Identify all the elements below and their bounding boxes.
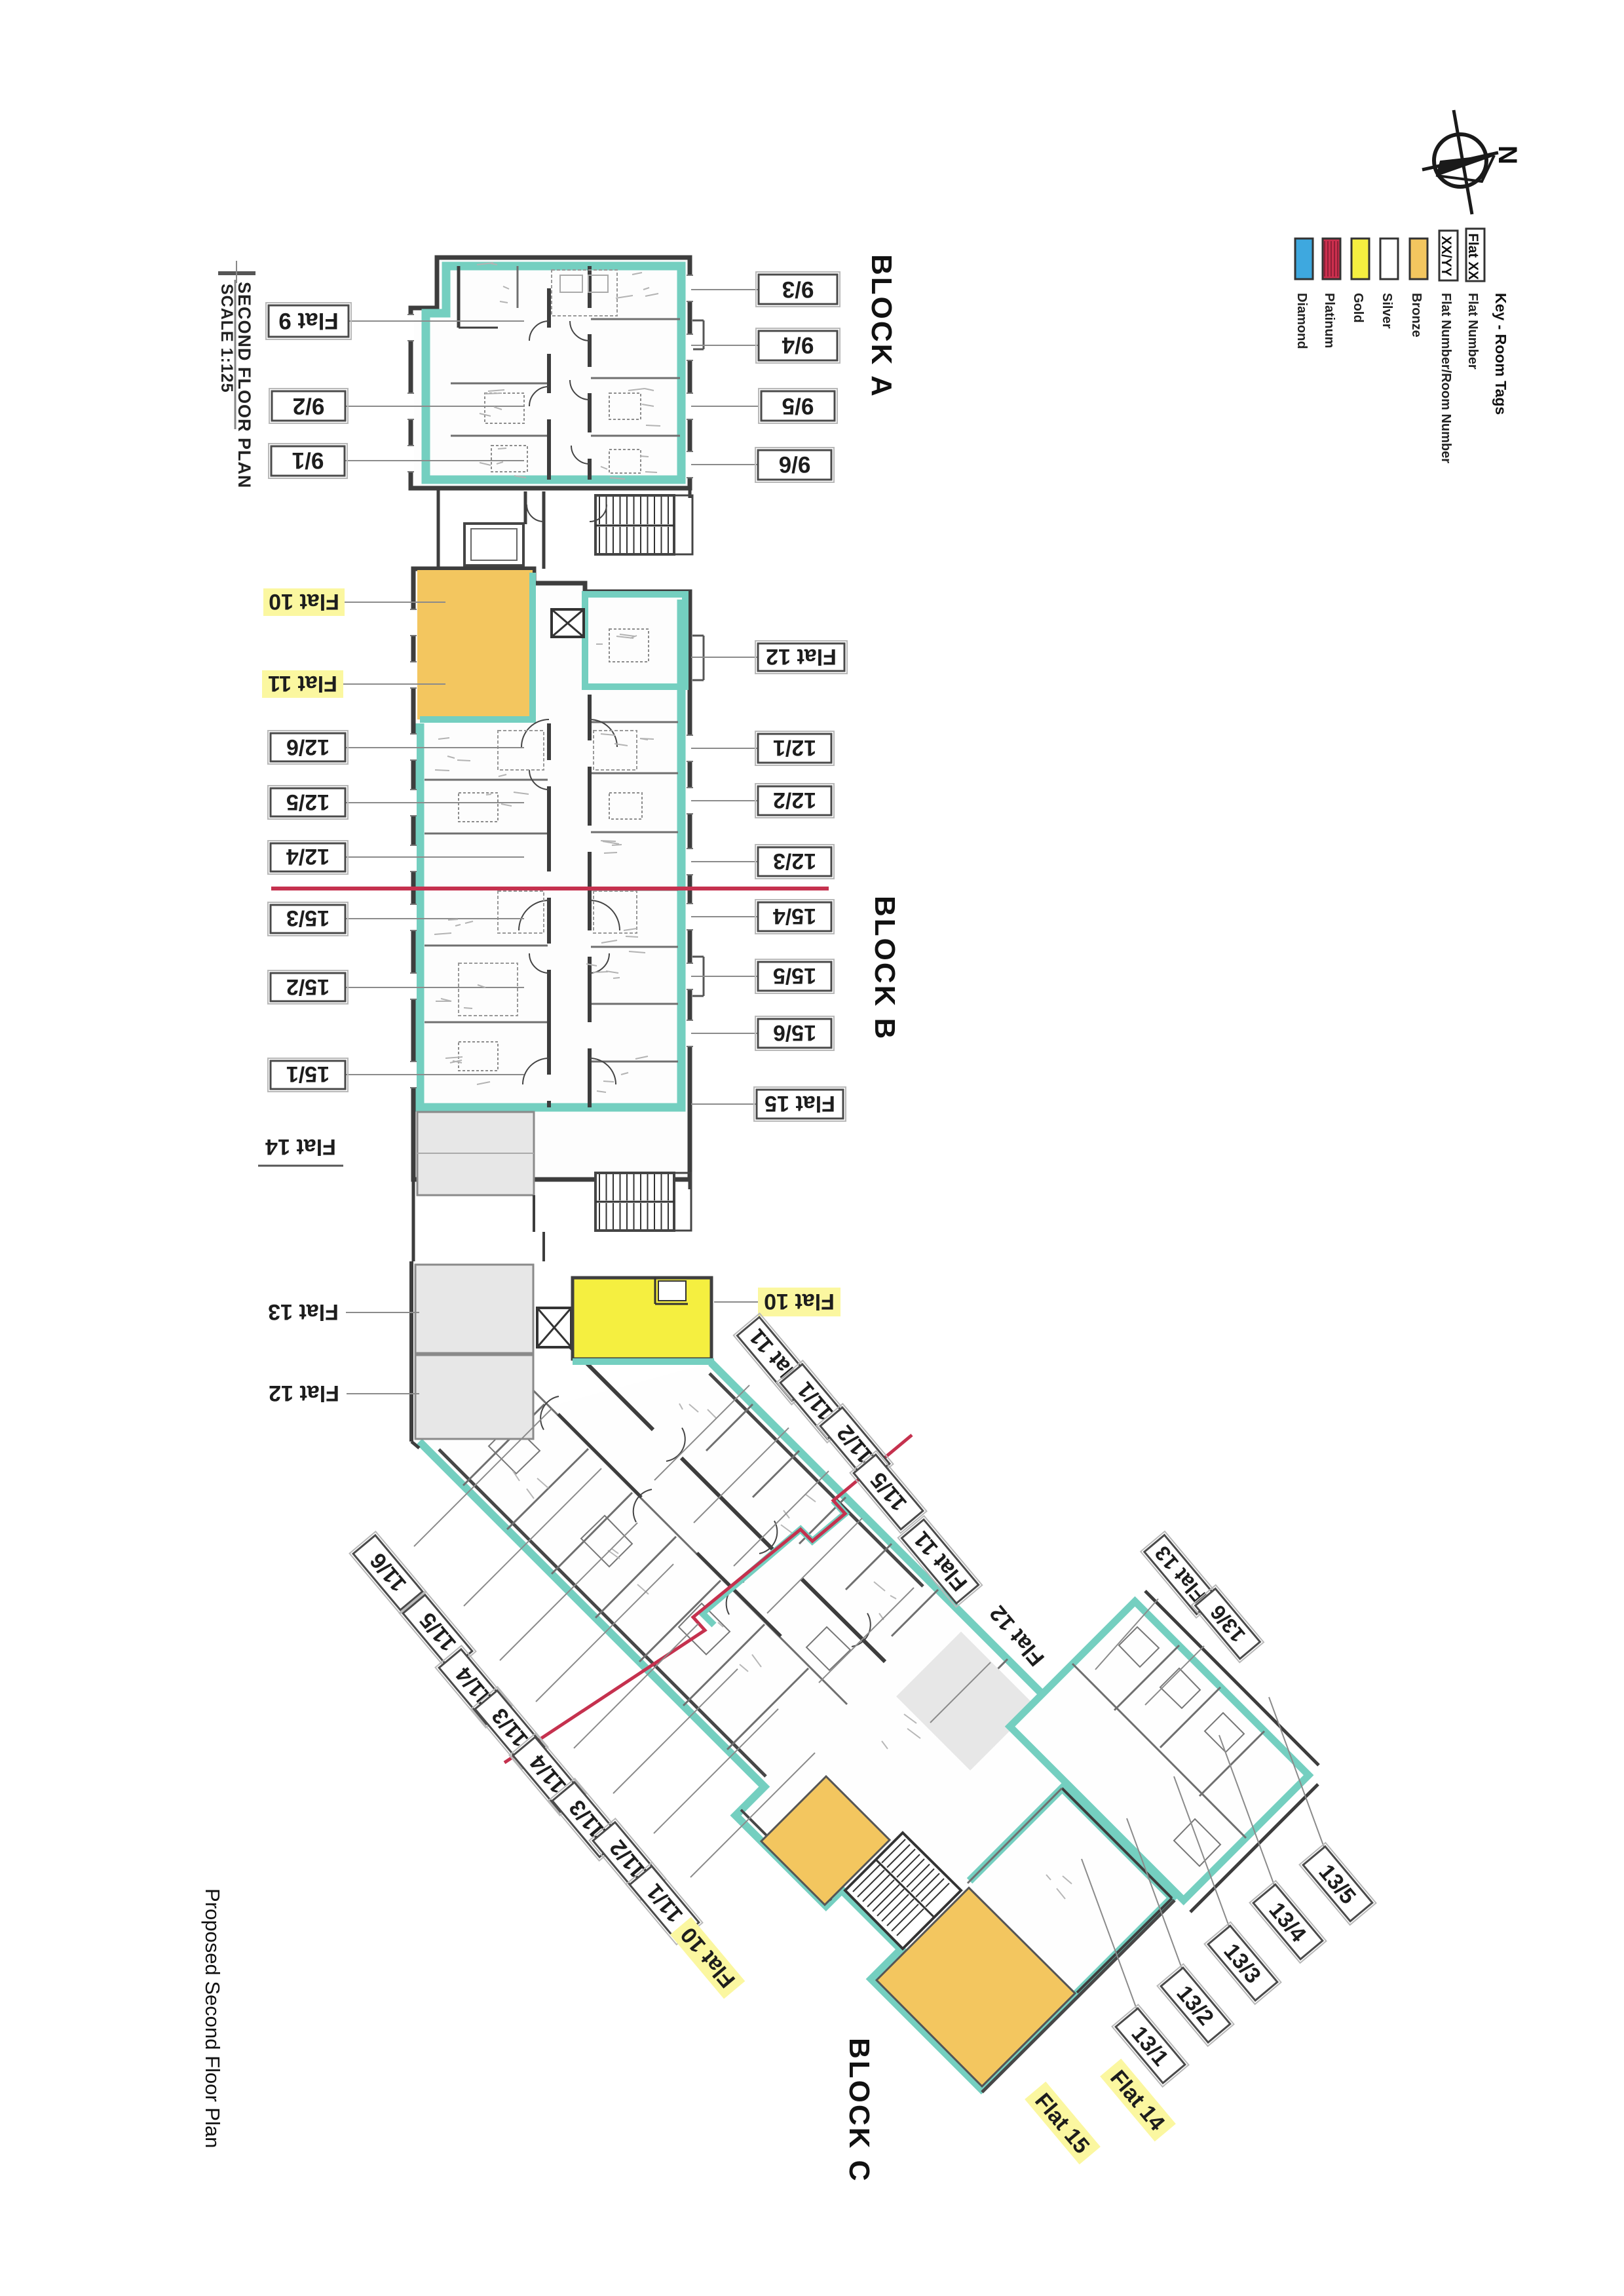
svg-text:Proposed Second Floor Plan: Proposed Second Floor Plan [201, 1888, 224, 2148]
svg-text:XX/YY: XX/YY [1439, 236, 1454, 277]
svg-text:12/4: 12/4 [286, 844, 330, 869]
svg-text:Silver: Silver [1380, 293, 1394, 329]
svg-text:Platinum: Platinum [1322, 293, 1336, 348]
svg-text:Bronze: Bronze [1409, 293, 1424, 337]
svg-text:Gold: Gold [1351, 293, 1365, 323]
svg-text:15/3: 15/3 [286, 906, 330, 930]
svg-text:Flat 10: Flat 10 [269, 589, 339, 614]
svg-text:9/4: 9/4 [782, 332, 814, 358]
svg-text:15/5: 15/5 [773, 963, 816, 988]
svg-text:9/3: 9/3 [782, 277, 814, 302]
svg-text:9/1: 9/1 [292, 448, 324, 473]
svg-text:15/4: 15/4 [773, 904, 816, 928]
svg-text:Flat 15: Flat 15 [765, 1091, 835, 1116]
svg-text:9/5: 9/5 [782, 393, 814, 419]
svg-text:BLOCK A: BLOCK A [865, 254, 897, 398]
svg-text:BLOCK C: BLOCK C [843, 2038, 875, 2183]
svg-text:15/2: 15/2 [286, 974, 330, 999]
svg-text:15/1: 15/1 [286, 1062, 330, 1086]
svg-text:SCALE 1:125: SCALE 1:125 [217, 284, 236, 393]
svg-text:Diamond: Diamond [1294, 293, 1309, 349]
svg-text:12/1: 12/1 [773, 735, 816, 760]
svg-text:Flat Number/Room Number: Flat Number/Room Number [1439, 293, 1453, 463]
svg-text:Flat XX: Flat XX [1465, 233, 1481, 280]
svg-text:SECOND FLOOR PLAN: SECOND FLOOR PLAN [235, 282, 254, 489]
svg-text:N: N [1493, 145, 1522, 164]
svg-text:9/2: 9/2 [293, 393, 325, 419]
svg-text:Flat 14: Flat 14 [265, 1134, 336, 1159]
svg-text:12/3: 12/3 [773, 849, 816, 873]
svg-text:12/5: 12/5 [286, 790, 330, 814]
svg-text:15/6: 15/6 [773, 1020, 816, 1045]
svg-text:Flat Number: Flat Number [1465, 293, 1480, 370]
svg-text:12/6: 12/6 [286, 735, 330, 759]
svg-text:Flat 13: Flat 13 [268, 1299, 339, 1324]
svg-text:Flat 11: Flat 11 [268, 671, 337, 696]
svg-text:12/2: 12/2 [773, 788, 816, 813]
svg-text:Key - Room Tags: Key - Room Tags [1492, 293, 1509, 415]
svg-text:Flat 10: Flat 10 [764, 1289, 835, 1314]
svg-text:Flat 9: Flat 9 [278, 308, 338, 334]
svg-text:9/6: 9/6 [779, 451, 811, 477]
svg-text:Flat 12: Flat 12 [766, 644, 837, 669]
svg-text:BLOCK B: BLOCK B [869, 896, 901, 1041]
svg-text:Flat 12: Flat 12 [269, 1381, 339, 1406]
